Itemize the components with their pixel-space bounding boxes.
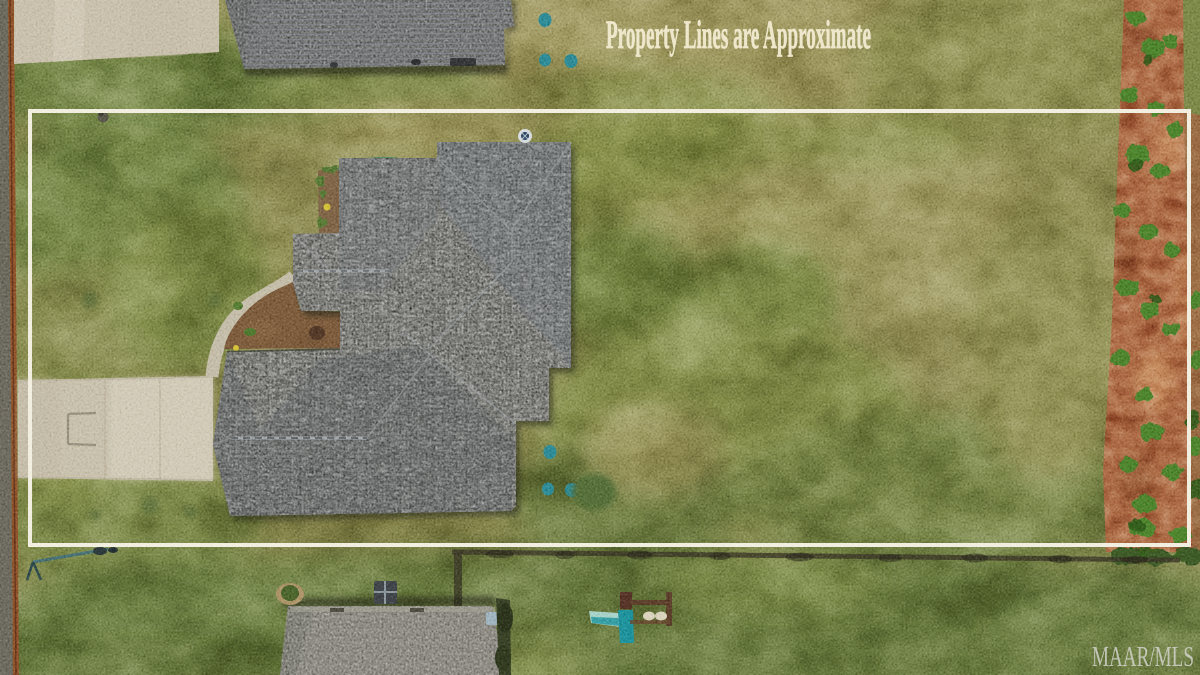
svg-text:MAAR/MLS: MAAR/MLS: [1092, 642, 1194, 673]
svg-text:Property Lines are Approximate: Property Lines are Approximate: [606, 12, 871, 57]
